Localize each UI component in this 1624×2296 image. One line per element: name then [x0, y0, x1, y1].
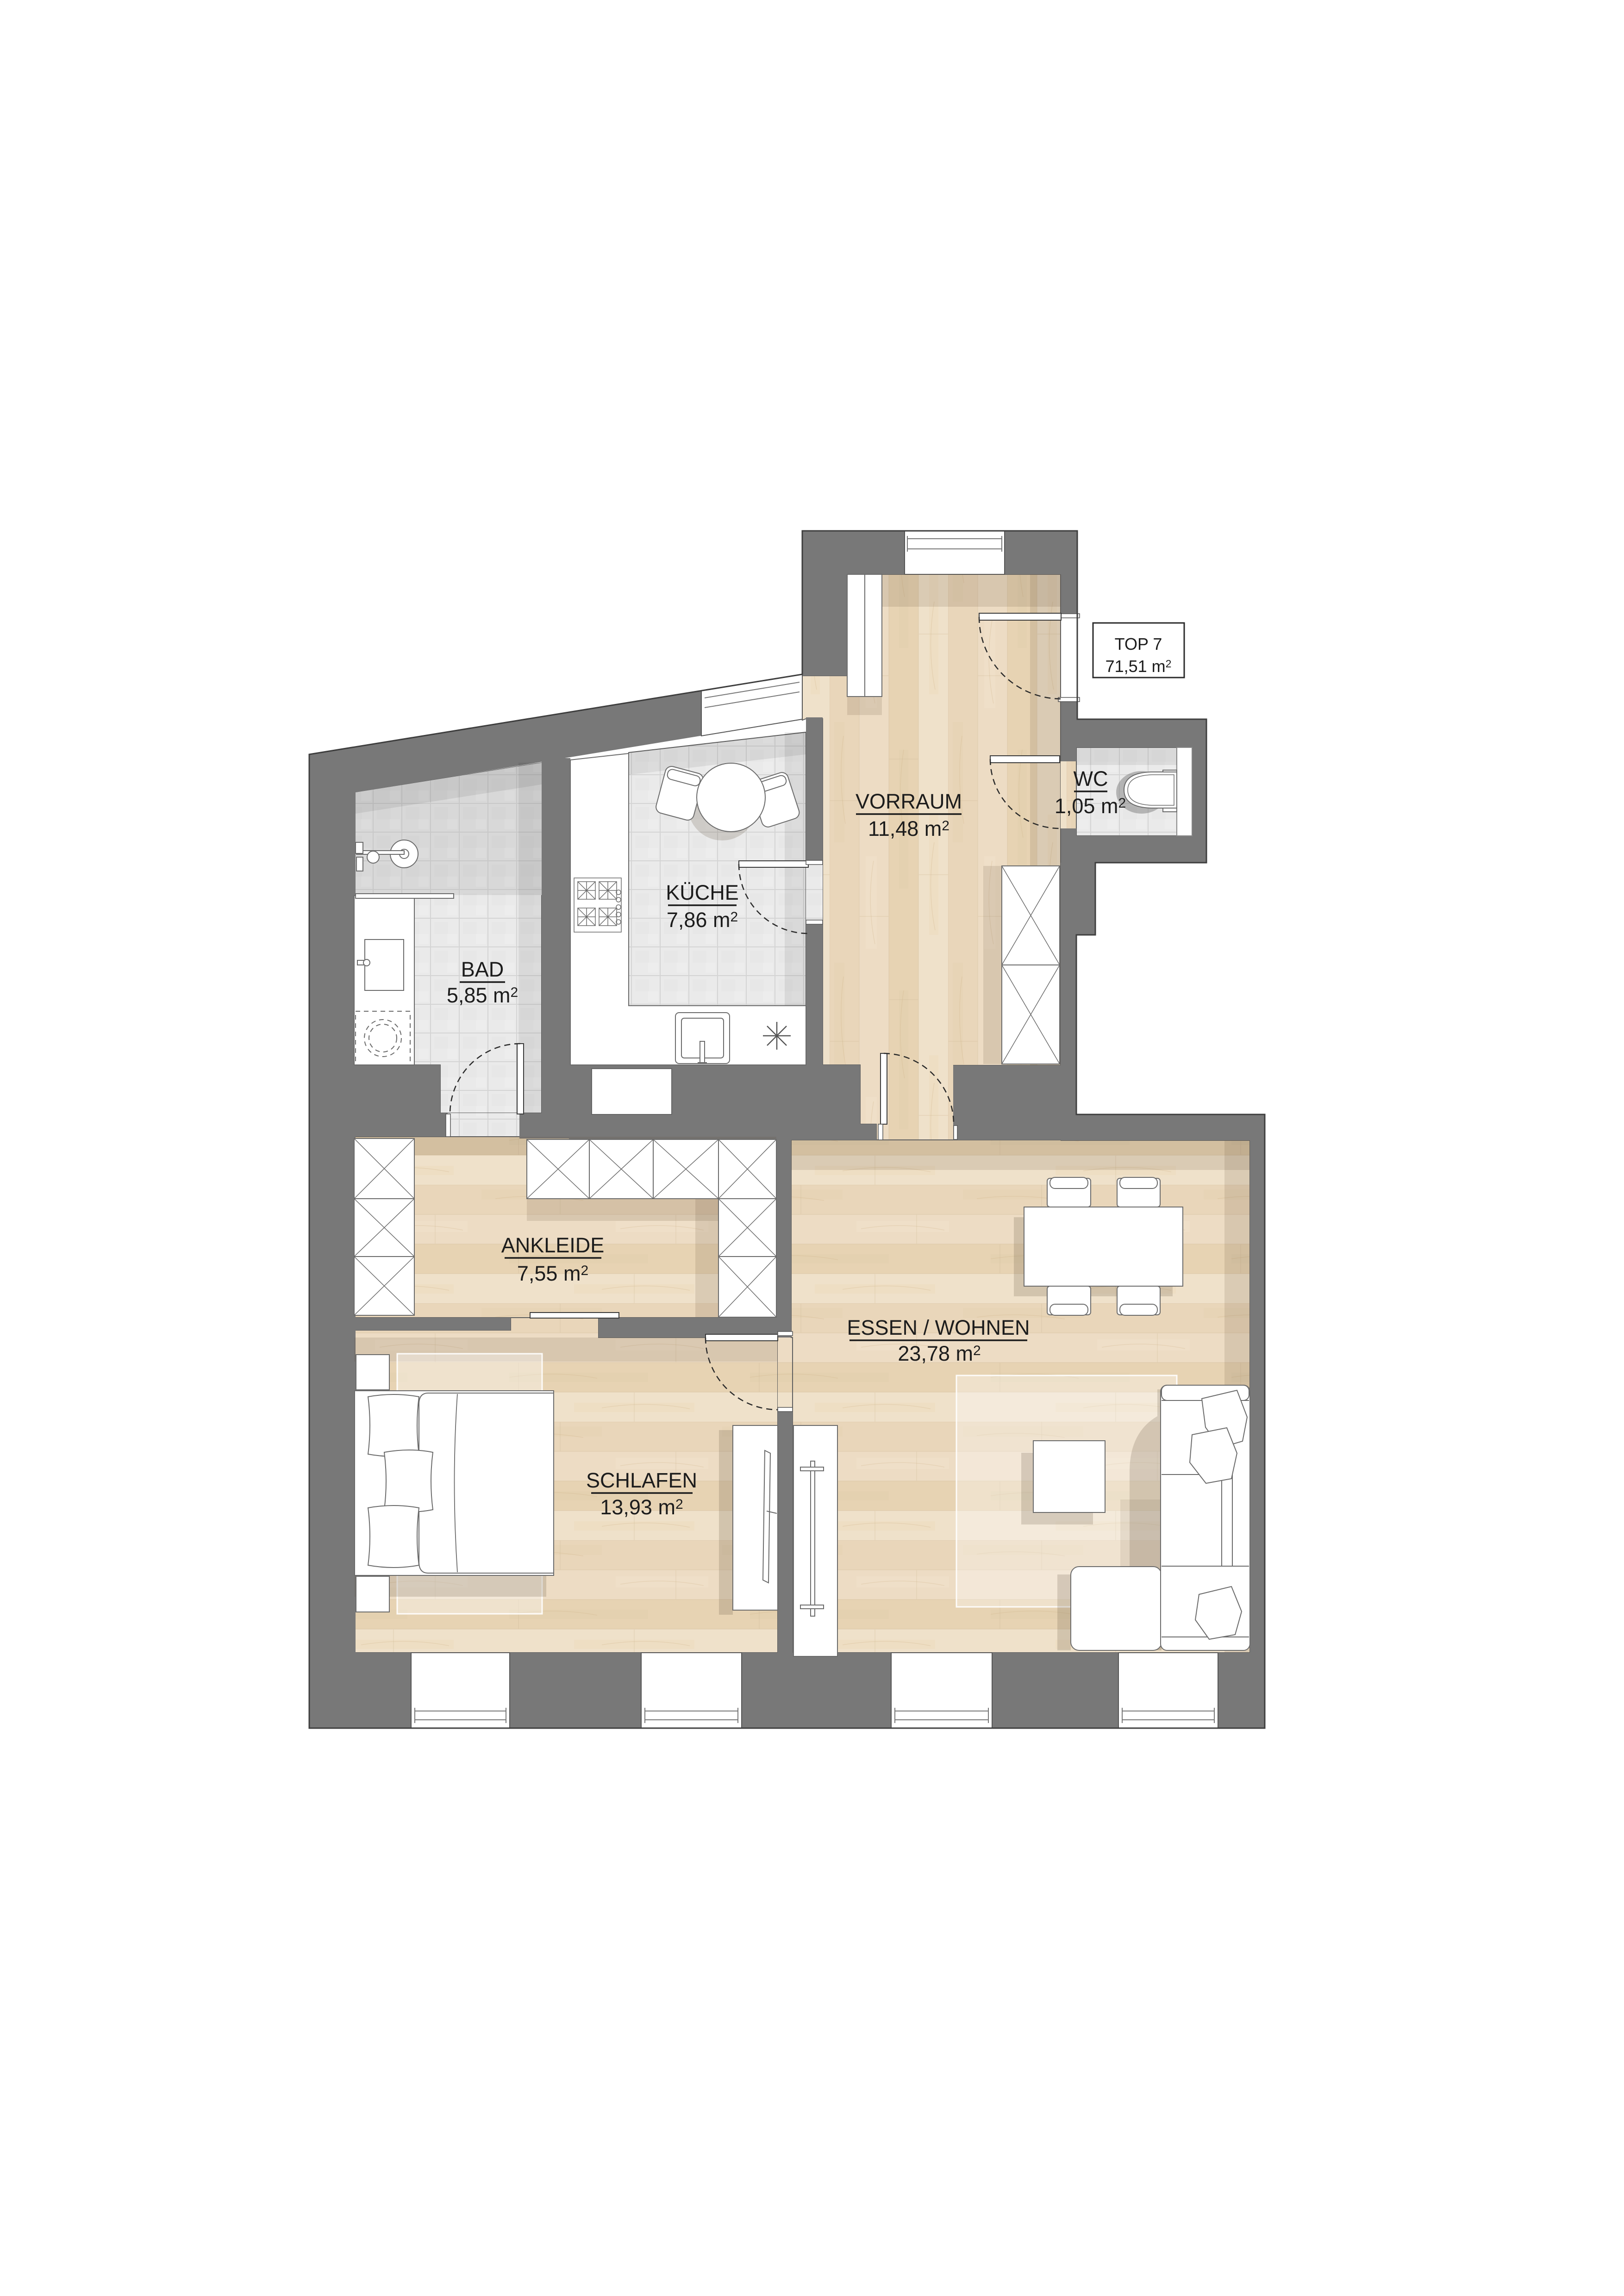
svg-text:1,05 m2: 1,05 m2 [1055, 794, 1126, 818]
svg-text:ESSEN / WOHNEN: ESSEN / WOHNEN [847, 1316, 1030, 1339]
svg-text:23,78 m2: 23,78 m2 [898, 1342, 981, 1365]
svg-text:7,86 m2: 7,86 m2 [667, 908, 738, 932]
svg-text:WC: WC [1074, 767, 1108, 790]
svg-text:5,85 m2: 5,85 m2 [447, 983, 518, 1007]
svg-text:KÜCHE: KÜCHE [666, 881, 739, 904]
svg-text:11,48 m2: 11,48 m2 [868, 817, 949, 840]
svg-text:ANKLEIDE: ANKLEIDE [501, 1233, 605, 1257]
svg-text:TOP 7: TOP 7 [1115, 635, 1162, 653]
svg-text:13,93 m2: 13,93 m2 [600, 1495, 683, 1519]
svg-text:BAD: BAD [461, 958, 504, 981]
svg-text:71,51 m2: 71,51 m2 [1106, 657, 1172, 676]
svg-text:SCHLAFEN: SCHLAFEN [586, 1468, 697, 1492]
svg-text:VORRAUM: VORRAUM [856, 790, 962, 813]
svg-text:7,55 m2: 7,55 m2 [517, 1262, 588, 1285]
